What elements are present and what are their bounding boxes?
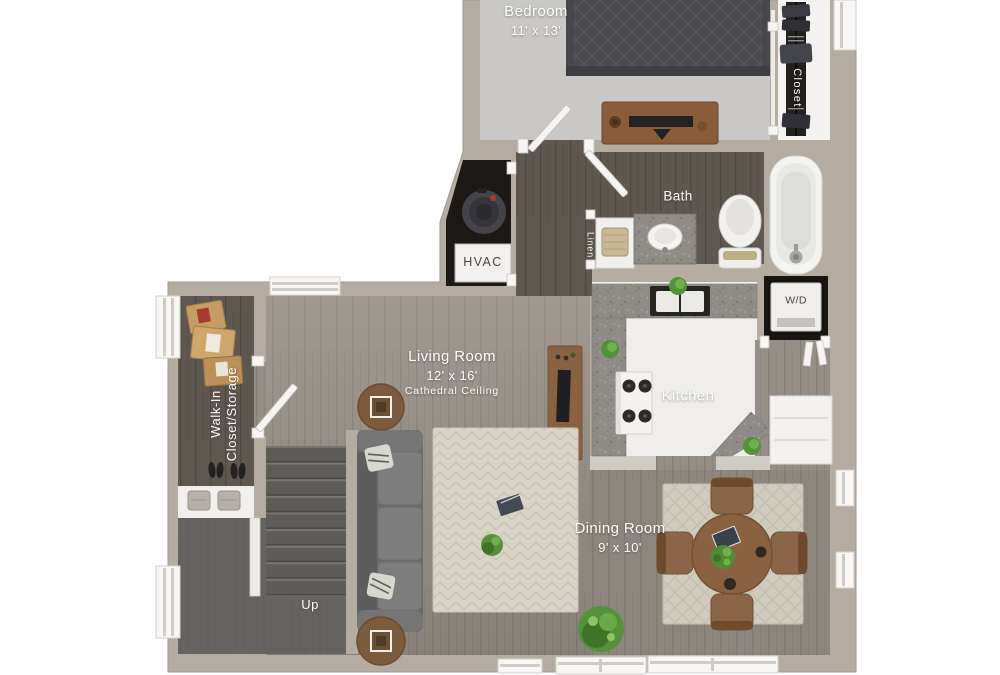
coaster — [756, 547, 767, 558]
dining-chair — [657, 532, 693, 574]
walkin-wall-lower — [254, 436, 266, 486]
linen-door-post — [586, 260, 595, 269]
kitchen-plant — [669, 277, 687, 295]
hvac-door-post — [507, 274, 516, 286]
hvac-label-plate — [455, 244, 511, 282]
living-rug — [433, 428, 578, 612]
window — [156, 566, 180, 638]
dining-chair — [711, 594, 753, 630]
stairs-half-wall — [250, 518, 260, 596]
floor-plant — [578, 606, 624, 652]
walkin-door-post — [252, 356, 264, 366]
kitchen-base-band-right — [716, 456, 770, 470]
console-tv — [556, 370, 571, 422]
laundry-door-post — [760, 336, 769, 348]
dining-chair — [711, 478, 753, 514]
toilet — [719, 195, 761, 268]
window — [834, 0, 856, 50]
window — [270, 277, 340, 295]
round-side-table — [357, 617, 405, 665]
hvac-door-post — [507, 162, 516, 174]
dresser-with-tv — [602, 102, 718, 144]
linen-door-post — [586, 210, 595, 219]
window — [836, 552, 854, 588]
door-post — [518, 139, 528, 153]
coaster — [724, 578, 736, 590]
floor-plan: Bedroom 11' x 13' Closet Bath Linen HVAC… — [0, 0, 1000, 675]
kitchen-plant — [601, 340, 619, 358]
bath-vanity-sink — [634, 214, 696, 264]
centerpiece-plant — [711, 545, 735, 569]
bedroom-closet — [768, 2, 813, 136]
stairs — [266, 446, 346, 596]
sofa — [357, 430, 423, 632]
dining-table — [692, 514, 772, 594]
closet-door-post — [768, 126, 778, 135]
kitchen-dining-opening-floor — [656, 456, 716, 470]
rug-plant — [481, 534, 503, 556]
window — [648, 656, 778, 673]
kitchen-plant — [743, 437, 761, 455]
dining-chair — [771, 532, 807, 574]
stairs-side-wall — [346, 430, 358, 654]
window — [836, 470, 854, 506]
stove — [616, 372, 652, 434]
bathtub — [770, 156, 822, 274]
window — [156, 296, 180, 358]
closet-door-post — [768, 22, 778, 31]
walkin-wall-upper — [254, 296, 266, 362]
window — [556, 657, 646, 674]
throw-pillow — [366, 572, 396, 600]
tv — [629, 116, 693, 127]
round-side-table — [358, 384, 404, 430]
kitchen-base-band-left — [590, 456, 656, 470]
floor-plan-canvas — [0, 0, 1000, 675]
bed — [566, 0, 770, 76]
window — [498, 659, 542, 673]
